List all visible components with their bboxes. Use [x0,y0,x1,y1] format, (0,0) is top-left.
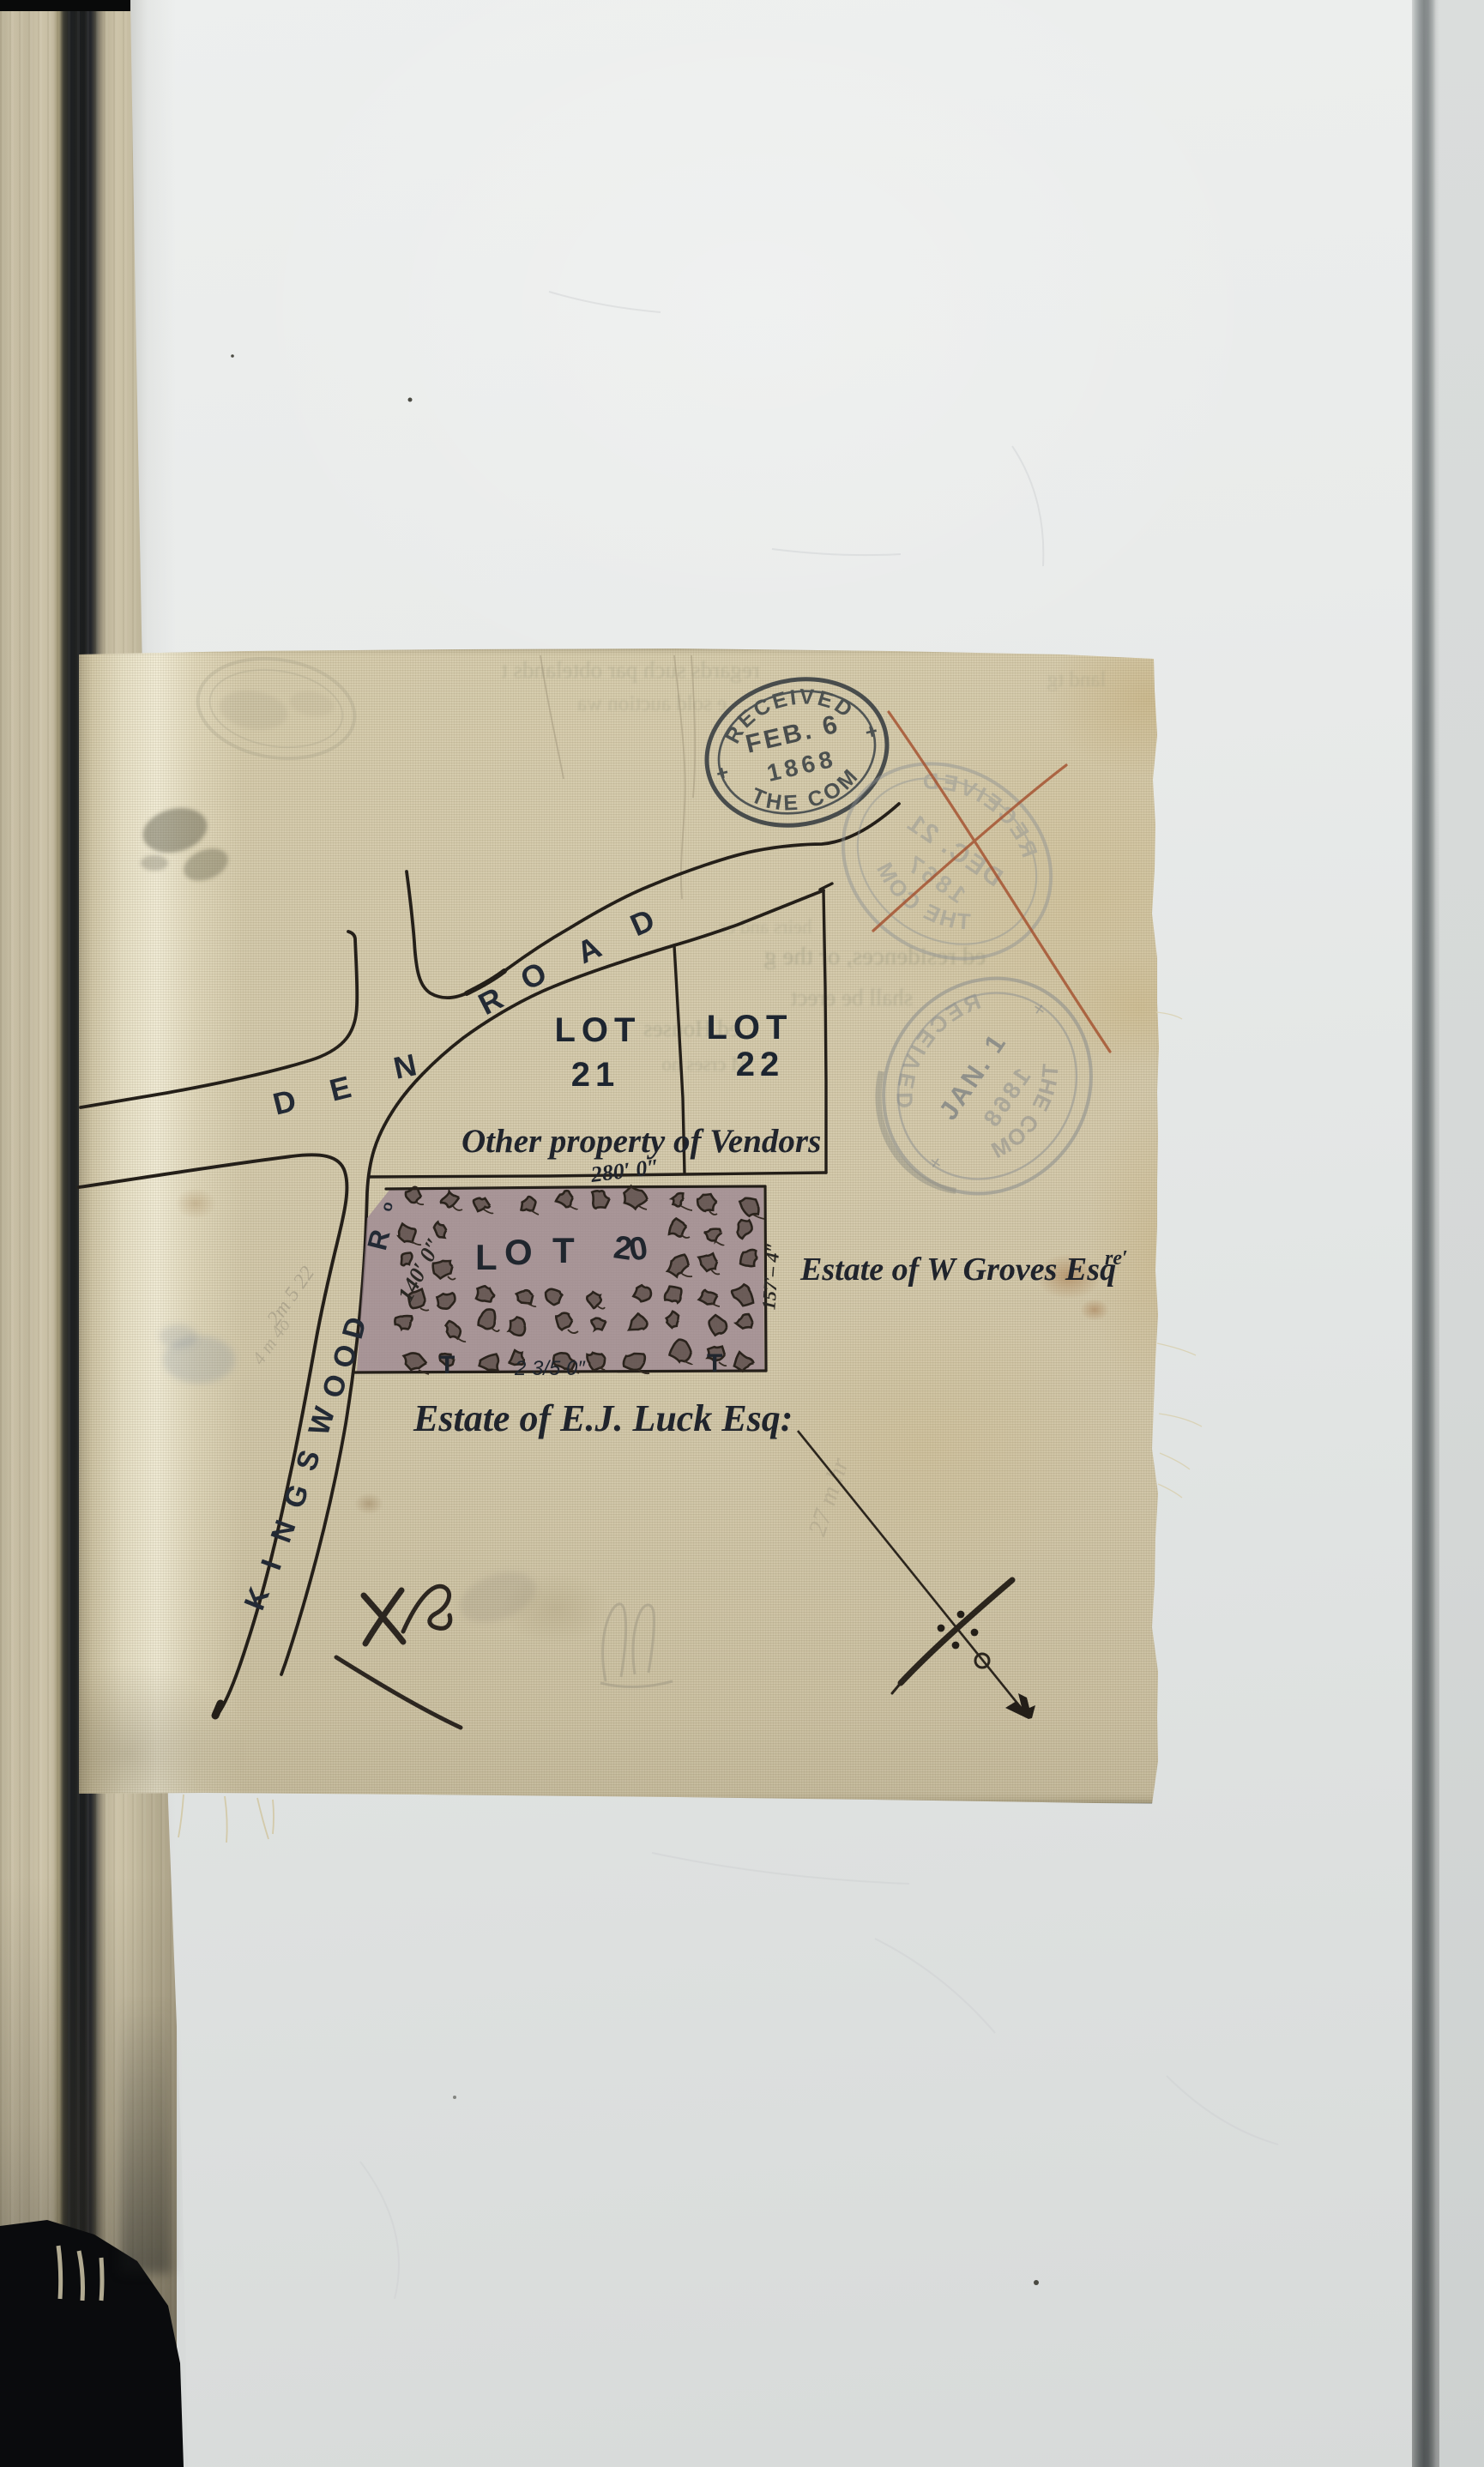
svg-text:Other property of Vendors: Other property of Vendors [461,1123,821,1160]
svg-text:land tg: land tg [1047,668,1106,691]
svg-text:Estate of E.J. Luck Esq:: Estate of E.J. Luck Esq: [413,1397,793,1439]
svg-text:e sold auction wa: e sold auction wa [577,692,727,715]
svg-text:E: E [326,1069,354,1108]
svg-text:T: T [439,1351,455,1379]
svg-text:L: L [475,1237,498,1277]
svg-text:4 m 4o: 4 m 4o [247,1314,294,1368]
svg-text:S: S [290,1446,327,1475]
svg-text:21: 21 [571,1056,620,1094]
svg-text:O: O [504,1232,533,1272]
svg-text:N: N [265,1516,303,1547]
svg-text:T: T [707,1349,722,1378]
svg-text:shall be erect: shall be erect [790,985,913,1010]
svg-text:W: W [303,1402,342,1439]
svg-text:re′: re′ [1105,1247,1128,1270]
svg-text:O: O [317,1371,354,1402]
svg-text:22: 22 [736,1046,785,1083]
svg-text:N: N [390,1047,419,1086]
svg-text:27 m hr: 27 m hr [803,1454,854,1539]
svg-text:+: + [863,720,880,745]
svg-text:LOT: LOT [707,1009,793,1047]
svg-text:regards such par obteland: regards such par obtelands t [501,657,760,683]
svg-text:D: D [269,1083,299,1122]
svg-text:A: A [571,929,606,970]
svg-text:+: + [1027,998,1053,1021]
svg-text:2 3/5 0″: 2 3/5 0″ [514,1357,586,1380]
svg-text:ed residences, or the g: ed residences, or the g [764,943,986,970]
svg-text:2m 5 22: 2m 5 22 [262,1263,319,1330]
svg-text:LOT: LOT [555,1011,642,1049]
svg-text:+: + [714,761,731,786]
svg-text:O: O [327,1341,365,1371]
svg-text:Estate of W Groves Esq: Estate of W Groves Esq [799,1252,1116,1288]
svg-text:K: K [238,1583,277,1614]
svg-text:157′– 4″: 157′– 4″ [757,1241,783,1310]
svg-text:D: D [625,902,660,943]
svg-text:T: T [552,1230,575,1270]
